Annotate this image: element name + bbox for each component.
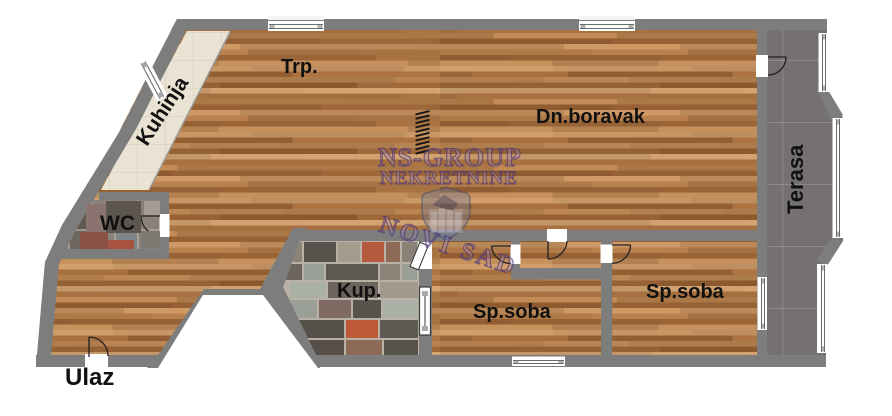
svg-text:Terasa: Terasa [783,144,808,214]
svg-text:WC: WC [100,212,135,235]
svg-text:Trp.: Trp. [281,56,318,78]
svg-text:Sp.soba: Sp.soba [473,301,552,323]
svg-text:Dn.boravak: Dn.boravak [536,106,646,128]
svg-text:NEKRETNINE: NEKRETNINE [380,168,518,189]
svg-text:Ulaz: Ulaz [65,364,114,391]
svg-text:Kup.: Kup. [337,280,381,302]
svg-text:Sp.soba: Sp.soba [646,281,725,303]
